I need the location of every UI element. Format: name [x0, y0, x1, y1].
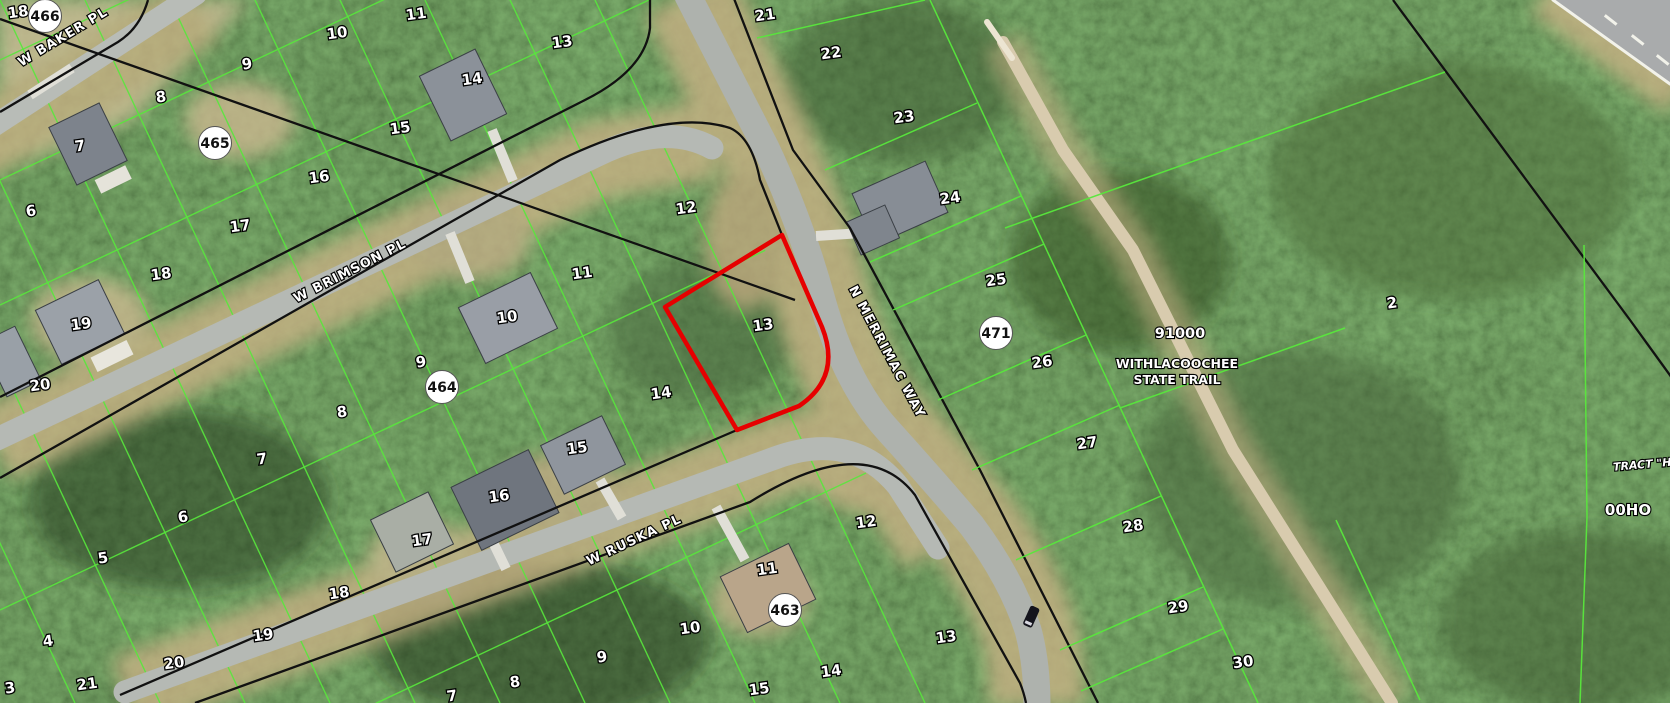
- svg-text:466: 466: [30, 9, 59, 25]
- lot-number-label: 16: [487, 486, 510, 507]
- lot-number-label: 28: [1121, 516, 1144, 537]
- lot-number-label: 13: [550, 32, 573, 53]
- lot-number-label: 17: [410, 530, 433, 551]
- lot-number-label: 24: [938, 188, 961, 209]
- lot-number-label: 17: [228, 216, 251, 237]
- lot-number-label: 20: [28, 375, 51, 396]
- lot-number-label: 11: [404, 4, 427, 25]
- svg-text:463: 463: [770, 603, 799, 619]
- lot-number-label: 21: [753, 5, 776, 26]
- lot-number-label: 11: [755, 559, 778, 580]
- section-badge: 464: [426, 371, 459, 404]
- lot-number-label: 10: [325, 23, 348, 44]
- lot-number-label: 18: [149, 264, 172, 285]
- lot-number-label: 18: [6, 2, 29, 23]
- lot-number-label: 13: [751, 315, 774, 336]
- svg-text:465: 465: [200, 136, 229, 152]
- trail-name-line2: STATE TRAIL: [1133, 372, 1220, 387]
- svg-text:464: 464: [427, 380, 456, 396]
- trail-name-line1: WITHLACOOCHEE: [1116, 356, 1238, 371]
- lot-number-label: 13: [934, 627, 957, 648]
- parcel-map[interactable]: 1898101113141516761718192021222324121110…: [0, 0, 1670, 703]
- lot-number-label: 14: [649, 383, 672, 404]
- section-badge: 463: [769, 594, 802, 627]
- lot-number-label: 22: [819, 43, 842, 64]
- lot-number-label: 18: [327, 583, 350, 604]
- lot-number-label: 15: [388, 118, 411, 139]
- lot-number-label: 15: [565, 438, 588, 459]
- section-badge: 465: [199, 127, 232, 160]
- tract-code-label: 00HO: [1605, 501, 1651, 519]
- map-canvas[interactable]: 1898101113141516761718192021222324121110…: [0, 0, 1670, 703]
- lot-number-label: 10: [678, 618, 701, 639]
- lot-number-label: 19: [69, 314, 92, 335]
- lot-number-label: 15: [747, 679, 770, 700]
- lot-number-label: 14: [819, 661, 842, 682]
- svg-text:471: 471: [981, 326, 1010, 342]
- lot-number-label: 20: [162, 653, 185, 674]
- lot-number-label: 21: [75, 674, 98, 695]
- lot-number-label: 30: [1231, 652, 1254, 673]
- section-badge: 471: [980, 317, 1013, 350]
- lot-number-label: 25: [984, 270, 1007, 291]
- lot-number-label: 16: [307, 167, 330, 188]
- lot-number-label: 14: [460, 69, 483, 90]
- lot-number-label: 10: [495, 307, 518, 328]
- lot-number-label: 12: [854, 512, 877, 533]
- trail-parcel-number: 91000: [1155, 326, 1205, 342]
- lot-number-label: 27: [1075, 433, 1098, 454]
- section-badge: 466: [29, 0, 62, 33]
- lot-number-label: 19: [251, 625, 274, 646]
- lot-number-label: 11: [570, 263, 593, 284]
- lot-number-label: 29: [1166, 597, 1189, 618]
- lot-number-label: 26: [1030, 352, 1053, 373]
- lot-number-label: 23: [892, 107, 915, 128]
- lot-number-label: 12: [674, 198, 697, 219]
